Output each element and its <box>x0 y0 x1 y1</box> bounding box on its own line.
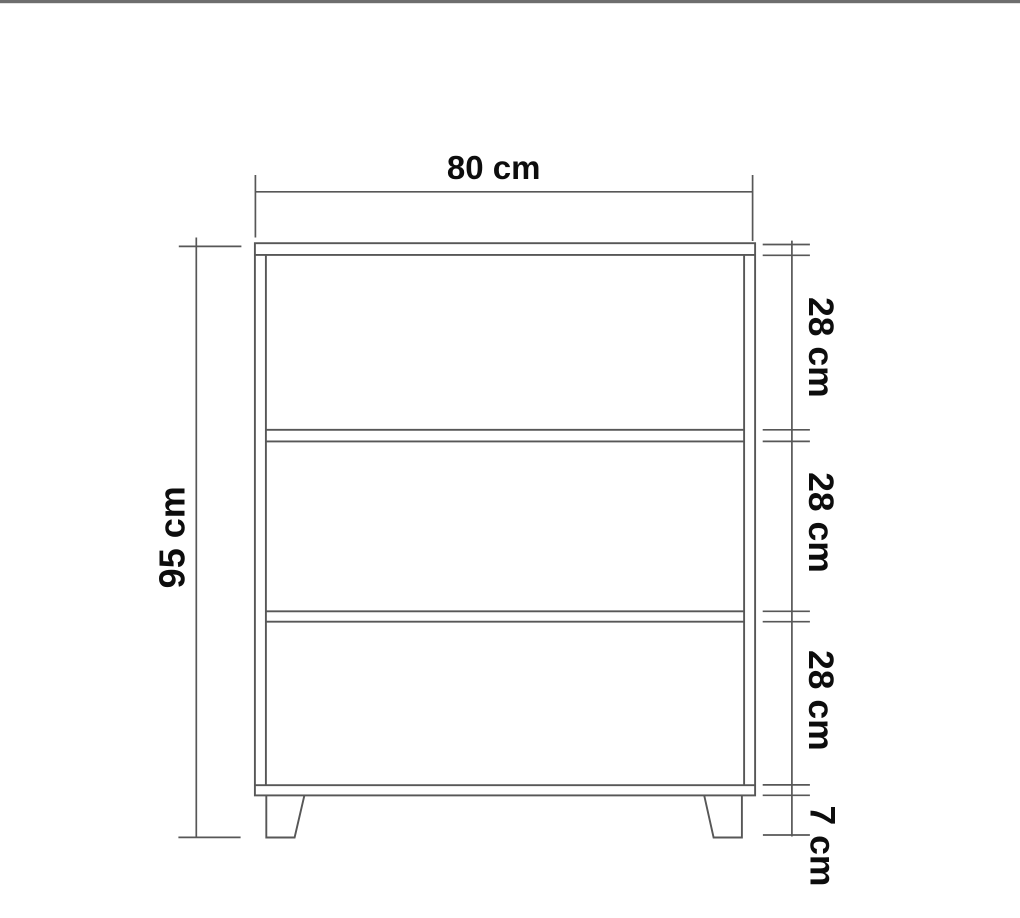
svg-text:28 cm: 28 cm <box>801 297 841 398</box>
svg-text:28 cm: 28 cm <box>801 650 841 751</box>
svg-text:7 cm: 7 cm <box>803 806 843 887</box>
svg-text:95 cm: 95 cm <box>152 486 193 588</box>
svg-text:80 cm: 80 cm <box>447 149 541 186</box>
svg-text:28 cm: 28 cm <box>801 472 841 573</box>
